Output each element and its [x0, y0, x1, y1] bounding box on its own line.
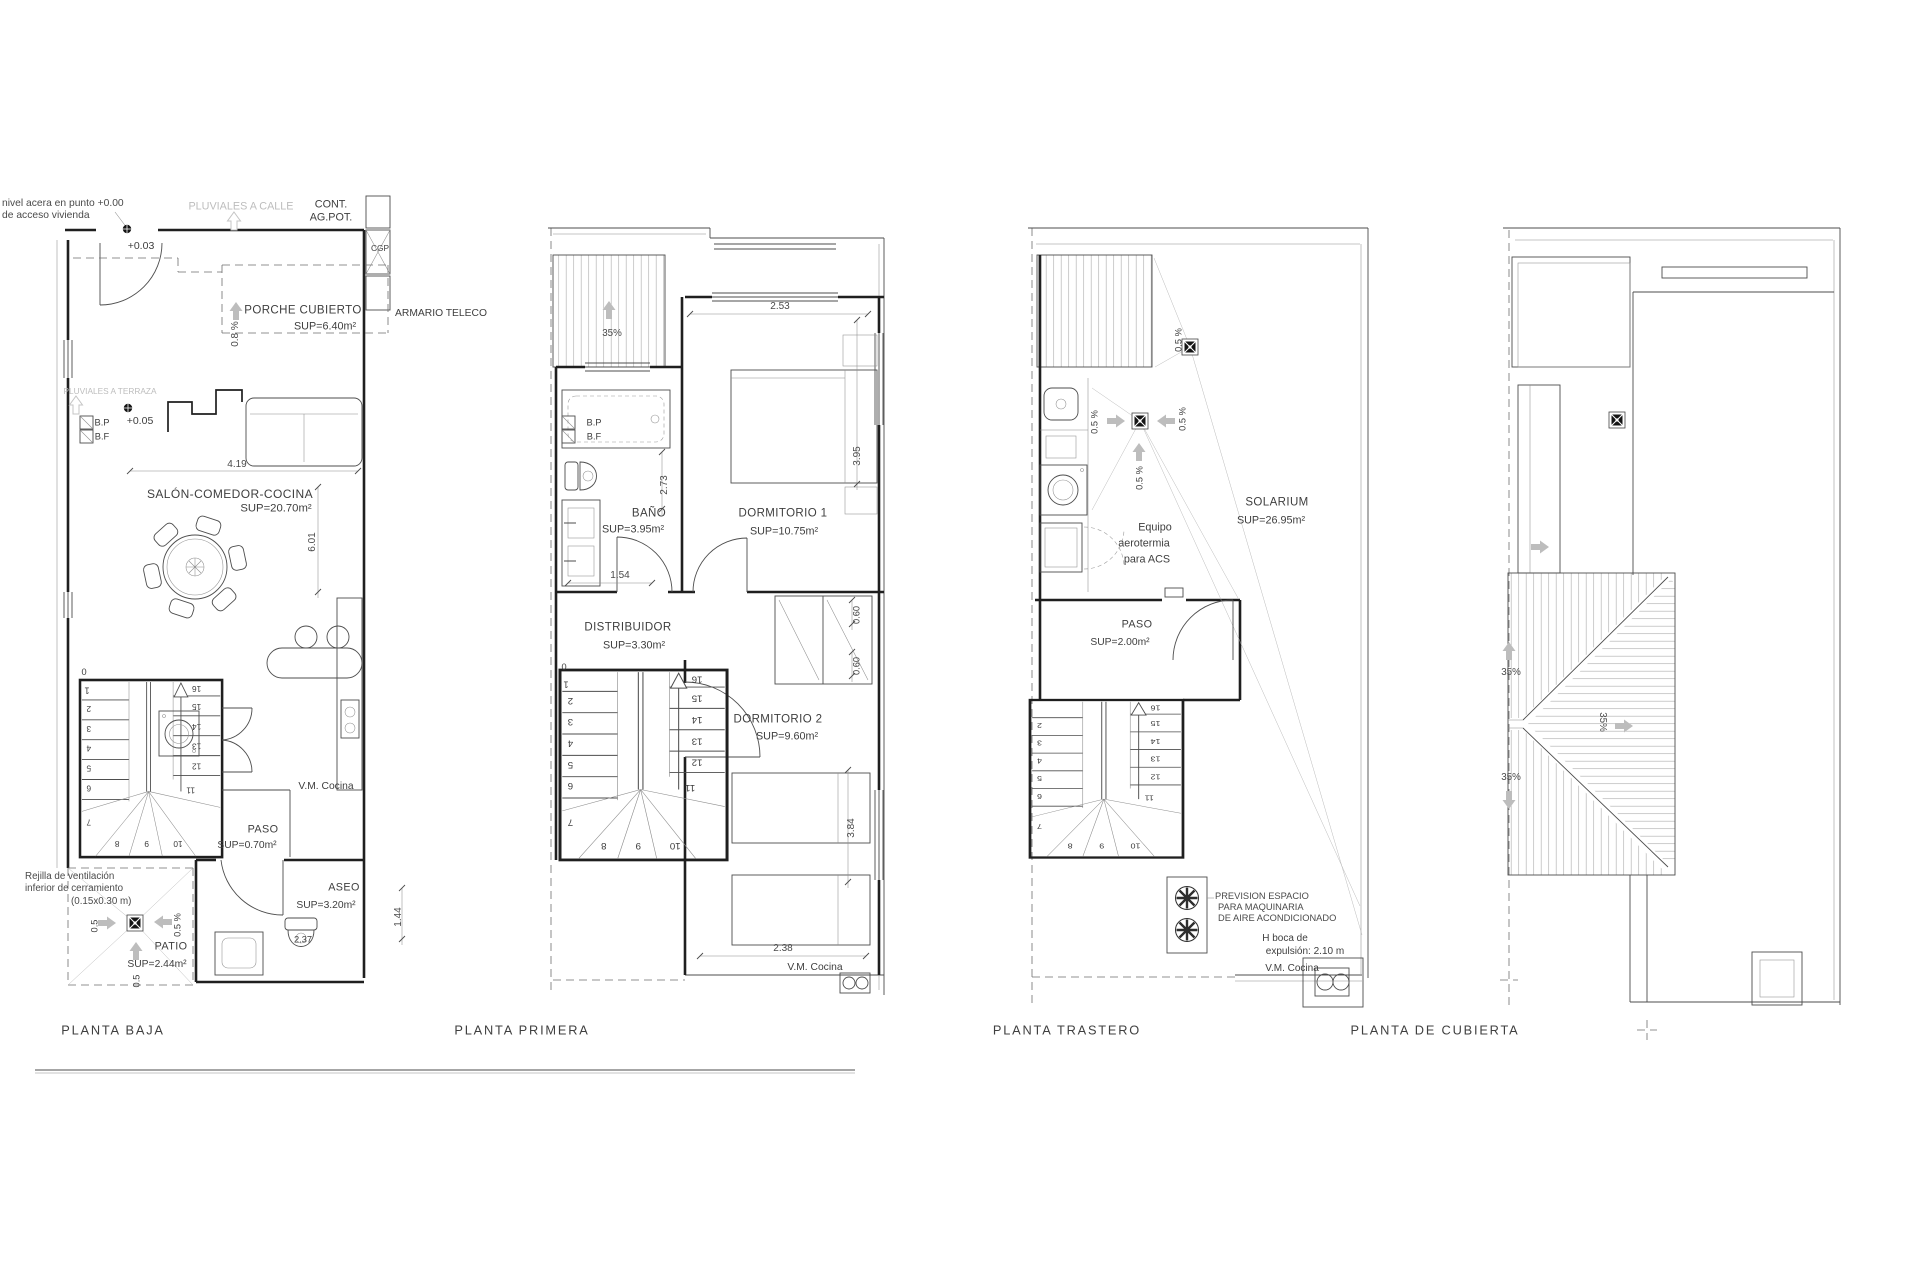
drain-icon: [1182, 339, 1198, 355]
laundry-sink-icon: [1040, 378, 1088, 592]
caption-planta-trastero: PLANTA TRASTERO: [993, 1025, 1141, 1038]
slope-05pct: 0.5 %: [1135, 466, 1144, 490]
dim-253: 2.53: [770, 302, 789, 312]
dorm1-door-arc: [693, 538, 747, 592]
slope-05pct: 0.5 %: [1090, 410, 1099, 434]
double-door-arcs: [222, 708, 252, 772]
slope-08: 0.8 %: [231, 321, 241, 347]
rain-arrow-icon: [228, 212, 241, 230]
dim-060: 0.60: [852, 657, 861, 675]
room-paso: PASO: [1122, 620, 1153, 631]
drain-icon: [127, 915, 143, 931]
room-dormitorio-2-sup: SUP=9.60m²: [756, 732, 818, 743]
kitchen-vent-box: [840, 973, 870, 993]
note-nivel-acera: nivel acera en punto +0.00: [2, 199, 124, 209]
upper-roof-block: [1512, 257, 1630, 367]
hip-roof: [1508, 573, 1675, 875]
fan-icon: [1176, 919, 1199, 942]
dim-144: 1.44: [394, 907, 404, 926]
room-solarium: SOLARIUM: [1245, 497, 1308, 509]
riser-boxes: [562, 416, 575, 443]
stair-number: 1: [84, 685, 89, 694]
label-agpot: AG.POT.: [310, 213, 353, 224]
bath-door-arc: [617, 537, 672, 592]
armario-teleco-box: [366, 196, 390, 310]
dim-060: 0.60: [852, 606, 861, 624]
staircase: [80, 680, 222, 857]
room-solarium-sup: SUP=26.95m²: [1237, 516, 1305, 527]
dim-273: 2.73: [660, 475, 670, 494]
planta-trastero-linework: [1028, 228, 1368, 1007]
roof-hatch: [1037, 255, 1152, 367]
slope-05pct: 0.5 %: [1174, 328, 1183, 352]
stair-number: 1: [563, 679, 568, 688]
shower-icon: [562, 390, 670, 448]
level-marker-icon: [124, 404, 132, 412]
slope-arrow-icon: [230, 302, 243, 320]
slope-arrow-icon: [1157, 415, 1175, 428]
fan-icon: [1176, 887, 1199, 910]
slope-05: 0.5: [132, 975, 141, 988]
note-prevision-1: PREVISION ESPACIO: [1215, 892, 1309, 901]
note-rejilla-2: inferior de cerramiento: [25, 884, 123, 894]
room-porche: PORCHE CUBIERTO: [244, 305, 361, 317]
label-vm-cocina: V.M. Cocina: [1265, 964, 1319, 974]
label-pluviales-terraza: PLUVIALES A TERRAZA: [64, 387, 157, 395]
level-005: +0.05: [127, 416, 154, 427]
slope-arrow-icon: [1531, 541, 1549, 554]
stair-number: 0: [561, 661, 566, 670]
label-bp: B.P: [587, 418, 602, 427]
washing-machine-icon: [1040, 465, 1087, 515]
label-cgp: CGP: [371, 244, 389, 252]
room-salon-sup: SUP=20.70m²: [240, 503, 311, 514]
label-cont: CONT.: [315, 200, 347, 211]
sofa-icon: [246, 398, 362, 466]
dim-238: 2.38: [773, 944, 792, 954]
bed-icon: [731, 335, 877, 514]
paso-door-arc: [1173, 600, 1233, 660]
room-porche-sup: SUP=6.40m²: [294, 322, 356, 333]
slope-arrow-icon: [98, 917, 116, 930]
ac-machinery-box: [1167, 877, 1214, 953]
riser-boxes: [80, 416, 93, 443]
note-boca-2: expulsión: 2.10 m: [1266, 947, 1344, 957]
label-bf: B.F: [587, 432, 601, 441]
room-paso: PASO: [248, 825, 279, 836]
note-rejilla-3: (0.15x0.30 m): [71, 897, 131, 907]
room-dormitorio-1-sup: SUP=10.75m²: [750, 527, 818, 538]
label-vm-cocina: V.M. Cocina: [787, 963, 842, 973]
dim-154: 1.54: [610, 571, 629, 581]
drain-icon: [1609, 412, 1625, 428]
staircase: [1030, 700, 1183, 858]
label-equipo-2: aerotermia: [1118, 539, 1170, 550]
slope-arrow-icon: [1133, 443, 1146, 461]
label-vm-cocina: V.M. Cocina: [298, 782, 353, 792]
entry-door-arc: [100, 243, 162, 305]
planta-primera-linework: [548, 228, 884, 995]
stair-number: 0: [81, 666, 86, 675]
slope-35: 35%: [1597, 712, 1607, 732]
dim-237: 2.37: [294, 935, 312, 944]
room-patio-sup: SUP=2.44m²: [127, 960, 186, 970]
dim-601: 6.01: [308, 532, 318, 551]
room-patio: PATIO: [155, 942, 188, 953]
room-dormitorio-1: DORMITORIO 1: [739, 508, 828, 520]
toilet-icon: [565, 462, 597, 490]
slope-arrow-icon: [130, 942, 143, 960]
note-rejilla-1: Rejilla de ventilación: [25, 872, 114, 882]
slope-arrow-icon: [1107, 415, 1125, 428]
roof-vent-box: [1752, 952, 1802, 1005]
architectural-sheet: 2 3 4 5 6 7 16 15 14 13 12 11 8 9 10: [0, 0, 1920, 1280]
room-aseo: ASEO: [328, 883, 360, 894]
room-distribuidor: DISTRIBUIDOR: [584, 622, 671, 634]
room-bano-sup: SUP=3.95m²: [602, 525, 664, 536]
slope-05pct: 0.5 %: [1178, 407, 1187, 431]
vent-opening: [1165, 588, 1183, 597]
level-003: +0.03: [128, 241, 155, 252]
aseo-door-arc: [221, 860, 283, 915]
label-equipo-3: para ACS: [1124, 555, 1170, 566]
room-paso-sup: SUP=2.00m²: [1090, 638, 1149, 648]
label-armario-teleco: ARMARIO TELECO: [395, 309, 487, 319]
level-marker-icon: [123, 225, 131, 233]
label-bf: B.F: [95, 432, 109, 441]
dim-395: 3.95: [853, 446, 863, 465]
slope-35: 35%: [602, 329, 622, 339]
room-distribuidor-sup: SUP=3.30m²: [603, 641, 665, 652]
room-bano: BAÑO: [632, 508, 666, 520]
note-acceso: de acceso vivienda: [2, 211, 90, 221]
staircase: [560, 670, 727, 860]
room-aseo-sup: SUP=3.20m²: [296, 901, 355, 911]
aerotermia-unit: [1040, 523, 1124, 572]
dining-table-icon: [143, 515, 248, 619]
planta-cubierta-linework: [1500, 228, 1840, 1040]
label-bp: B.P: [95, 418, 110, 427]
caption-planta-baja: PLANTA BAJA: [61, 1025, 165, 1038]
dim-384: 3.84: [847, 818, 857, 837]
slope-05pct: 0.5 %: [173, 913, 182, 937]
note-boca-1: H boca de: [1262, 934, 1308, 944]
slope-arrow-icon: [154, 916, 172, 929]
dim-419: 4.19: [227, 460, 246, 470]
room-dormitorio-2: DORMITORIO 2: [734, 714, 823, 726]
sink-vanity-icon: [215, 932, 263, 975]
caption-planta-primera: PLANTA PRIMERA: [454, 1025, 589, 1038]
room-salon: SALÓN-COMEDOR-COCINA: [147, 488, 313, 500]
slope-05: 0.5: [90, 920, 99, 933]
slope-35: 35%: [1501, 668, 1521, 678]
label-equipo-1: Equipo: [1138, 523, 1172, 534]
beam: [1662, 267, 1807, 278]
slope-35: 35%: [1501, 773, 1521, 783]
room-paso-sup: SUP=0.70m²: [217, 841, 276, 851]
label-pluviales-calle: PLUVIALES A CALLE: [188, 202, 293, 213]
double-sink-vanity-icon: [562, 500, 600, 586]
rain-arrow-icon: [70, 396, 83, 414]
bed-icon: [732, 773, 870, 945]
note-prevision-3: DE AIRE ACONDICIONADO: [1218, 914, 1336, 923]
stepped-wall: [168, 390, 242, 432]
kitchen-icons: [267, 598, 362, 790]
caption-planta-cubierta: PLANTA DE CUBIERTA: [1351, 1025, 1520, 1038]
drain-icon: [1132, 413, 1148, 429]
note-prevision-2: PARA MAQUINARIA: [1218, 903, 1304, 912]
plans-linework: 2 3 4 5 6 7 16 15 14 13 12 11 8 9 10: [0, 0, 1920, 1280]
